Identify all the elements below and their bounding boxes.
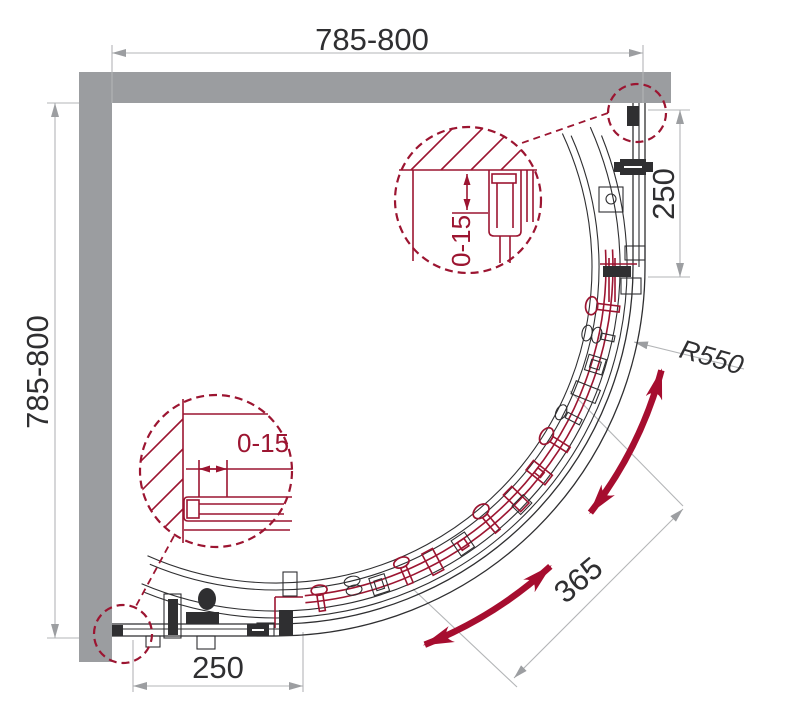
top-profile-cap (627, 106, 639, 126)
door-travel-label: 365 (547, 550, 609, 610)
door-bracket (502, 485, 532, 515)
top-width-label: 785-800 (315, 22, 429, 57)
wall-hatching-top (381, 110, 561, 170)
track-arc (148, 134, 592, 584)
fixed-panel-arc (142, 127, 620, 611)
left-height-dimension: 785-800 (20, 103, 79, 638)
right-inset-dimension: 250 (646, 110, 690, 277)
extension-line (570, 391, 683, 506)
sliding-doors (305, 249, 613, 602)
adjustment-dimension-bottom: 0-15 (186, 428, 292, 497)
bracket (584, 354, 606, 375)
fixed-panel-arc (145, 136, 628, 618)
radius-callout: R550 (634, 334, 747, 381)
detail-leader-top (519, 113, 608, 144)
door-direction-arrows (425, 370, 662, 644)
inner-profile-path (112, 103, 633, 624)
sliding-door-arc (305, 249, 613, 602)
dimension-line (514, 509, 683, 678)
bottom-inset-dimension: 250 (133, 632, 303, 692)
shower-enclosure-plan-drawing: 785-800 785-800 250 250 365 R550 (0, 0, 800, 712)
radius-label: R550 (676, 334, 746, 381)
bottom-inset-label: 250 (192, 650, 244, 685)
bottom-profile-cap (112, 625, 123, 636)
door-stop-top (600, 246, 645, 302)
technical-drawing-page: 785-800 785-800 250 250 365 R550 (0, 0, 800, 712)
track-arc (150, 136, 599, 590)
outer-profile-path (112, 103, 645, 636)
sliding-door-arc (305, 250, 606, 596)
wall-bracket-bottom (247, 624, 269, 636)
adjustment-dimension-top: 0-15 (446, 174, 488, 267)
top-wall (79, 72, 671, 103)
adjust-top-label: 0-15 (446, 215, 476, 267)
right-inset-label: 250 (646, 168, 681, 220)
top-detail-callout: 0-15 (381, 84, 666, 273)
left-wall (79, 72, 112, 662)
left-height-label: 785-800 (20, 315, 55, 429)
detail-circle-bottom (140, 395, 292, 547)
adjust-bottom-label: 0-15 (237, 428, 289, 458)
wall-hatching-bottom (123, 389, 183, 569)
enclosure-frame (112, 103, 645, 636)
lower-direction-arrow (425, 566, 551, 644)
